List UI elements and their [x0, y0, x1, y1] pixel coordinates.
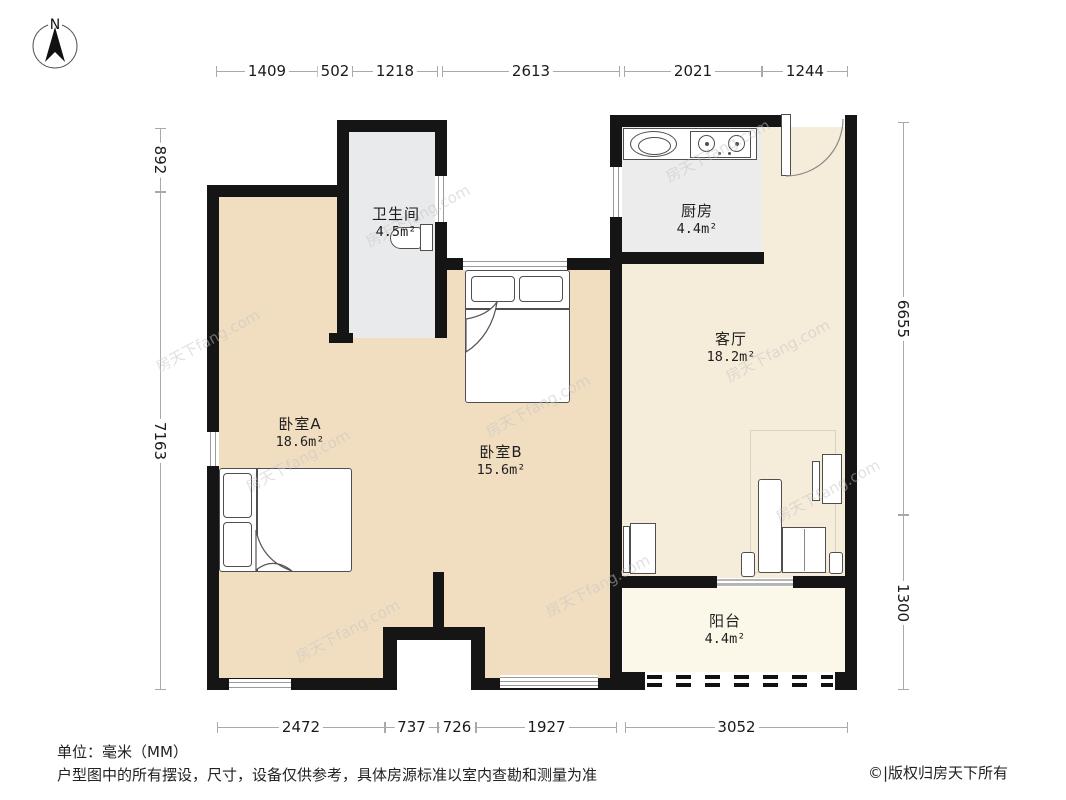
wall: [793, 576, 857, 588]
dimension-top: 2021: [624, 63, 762, 79]
dimension-top: 502: [318, 63, 352, 79]
balcony-railing-dashes: [647, 675, 833, 679]
sofa-chaise: [758, 479, 782, 573]
dimension-top: 1244: [762, 63, 848, 79]
entry-door: [781, 114, 791, 176]
tv-cabinet: [630, 523, 656, 574]
wall: [337, 120, 447, 132]
window: [610, 167, 622, 217]
wall: [207, 466, 219, 690]
room-label-balcony: 阳台 4.4m²: [705, 612, 746, 648]
dimension-left: 7163: [152, 192, 168, 690]
room-label-living: 客厅 18.2m²: [707, 330, 756, 366]
tv-screen: [812, 461, 820, 501]
tv-cabinet: [822, 454, 842, 504]
wall: [383, 640, 397, 690]
unit-note: 单位：毫米（MM）: [57, 741, 188, 762]
stove-knob: [728, 152, 731, 155]
pillow: [223, 473, 252, 518]
sink-basin: [638, 137, 671, 155]
wall: [337, 120, 349, 343]
window: [435, 176, 447, 222]
dimension-bottom: 737: [385, 719, 438, 735]
disclaimer: 户型图中的所有摆设，尺寸，设备仅供参考，具体房源标准以室内查勘和测量为准: [57, 764, 597, 785]
wall: [469, 640, 485, 690]
north-arrow-icon: [45, 27, 65, 62]
toilet: [420, 224, 433, 251]
side-table: [829, 552, 843, 574]
wall: [610, 115, 783, 127]
room-label-bathroom: 卫生间 4.5m²: [372, 205, 420, 241]
burner-dot: [735, 142, 739, 146]
room-label-kitchen: 厨房 4.4m²: [677, 202, 718, 238]
wall: [610, 576, 717, 588]
floor-plan: N 房天下fang.com 房天下fang.com 房天下fang.com 房天…: [0, 0, 1066, 800]
room-label-bedroomA: 卧室A 18.6m²: [276, 415, 325, 451]
window: [207, 432, 219, 466]
side-table: [741, 552, 755, 577]
wall: [433, 572, 444, 638]
dimension-bottom: 1927: [476, 719, 617, 735]
burner-dot: [705, 142, 709, 146]
window: [229, 679, 291, 690]
compass-n-label: N: [50, 17, 60, 33]
balcony-sliding-door: [717, 578, 793, 587]
balcony-railing-dashes: [647, 683, 833, 687]
dimension-top: 1218: [352, 63, 438, 79]
wall: [610, 672, 645, 690]
dimension-right: 1300: [895, 515, 911, 690]
dimension-bottom: 726: [438, 719, 476, 735]
wall: [329, 333, 353, 343]
wall: [435, 222, 447, 338]
wall: [207, 185, 219, 432]
sofa-seam: [804, 529, 805, 571]
dimension-top: 1409: [216, 63, 318, 79]
dimension-bottom: 2472: [217, 719, 385, 735]
blanket-line: [466, 308, 569, 310]
tv-screen: [623, 526, 630, 573]
room-label-bedroomB: 卧室B 15.6m²: [477, 443, 526, 479]
pillow: [471, 276, 515, 302]
wall: [610, 217, 622, 690]
wall: [835, 672, 857, 690]
dimension-bottom: 3052: [625, 719, 848, 735]
window: [463, 258, 567, 270]
dimension-right: 6655: [895, 122, 911, 515]
north-compass: N: [20, 8, 90, 78]
dimension-top: 2613: [442, 63, 620, 79]
notch-opening: [397, 640, 471, 690]
pillow: [223, 522, 252, 567]
stove-knob: [718, 152, 721, 155]
wall: [616, 252, 764, 264]
blanket-line: [256, 469, 258, 571]
courtyard-void: [435, 120, 610, 258]
wall: [207, 185, 349, 197]
window: [500, 675, 598, 688]
dimension-left: 892: [152, 128, 168, 192]
wall: [435, 120, 447, 176]
copyright: ©|版权归房天下所有: [868, 762, 1008, 783]
pillow: [519, 276, 563, 302]
wall: [845, 115, 857, 690]
